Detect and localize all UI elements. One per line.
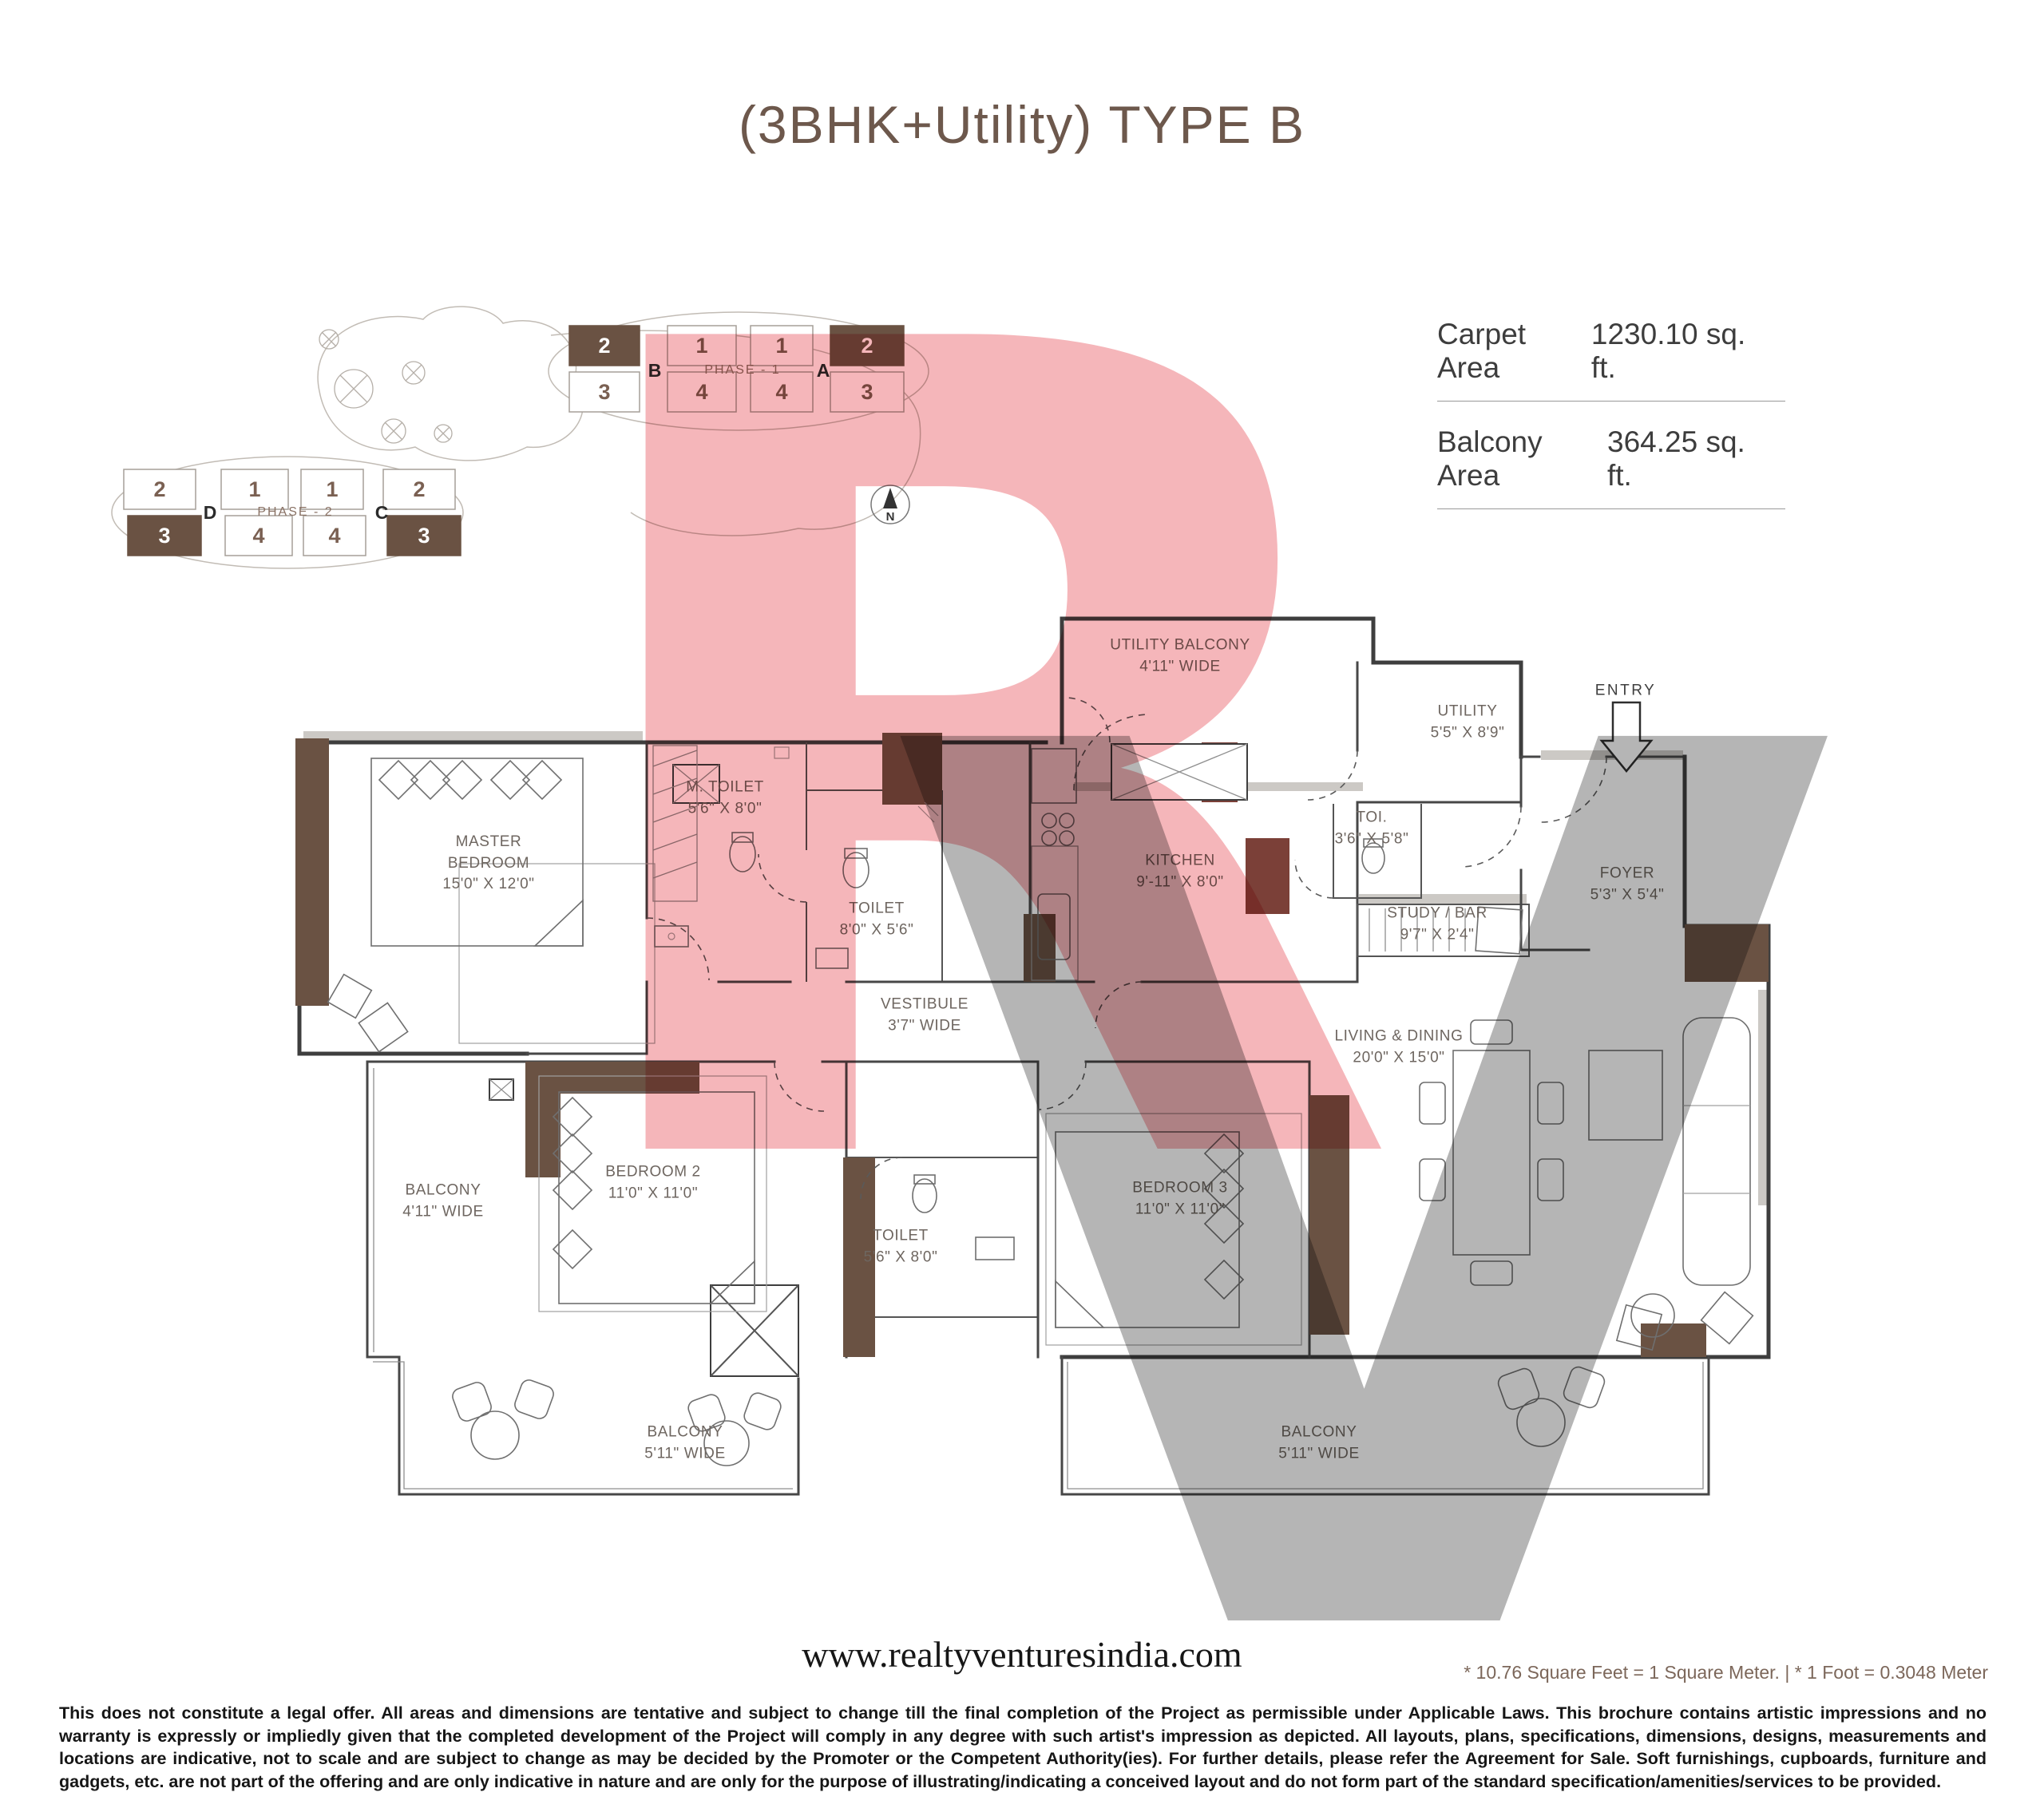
tower-unit-number: 1 [775,334,787,358]
balcony-area-label: Balcony Area [1437,425,1607,493]
outer-walls [299,619,1769,1494]
tower-unit-number: 2 [598,334,610,358]
room-label-foyer: FOYER5'3" X 5'4" [1590,863,1665,905]
legal-disclaimer: This does not constitute a legal offer. … [59,1702,1987,1793]
north-label: N [886,510,895,524]
carpet-area-label: Carpet Area [1437,318,1591,385]
room-label-kitchen: KITCHEN9'-11" X 8'0" [1136,850,1224,892]
brochure-page: (3BHK+Utility) TYPE B 2 1 [0,0,2044,1816]
balcony-area-row: Balcony Area 364.25 sq. ft. [1437,425,1785,509]
floor-plan: UTILITY BALCONY4'11" WIDE UTILITY5'5" X … [295,607,1781,1521]
tower-letter: C [375,502,389,523]
room-label-living-dining: LIVING & DINING20'0" X 15'0" [1334,1026,1463,1068]
tower-unit-number: 4 [252,524,264,548]
tower-unit-number: 2 [153,477,165,501]
phase-label: PHASE - 1 [704,363,780,377]
conversion-note: * 10.76 Square Feet = 1 Square Meter. | … [1464,1662,1988,1683]
wall-piers [295,733,1769,1357]
tree-icon [319,330,452,443]
room-label-toilet-2: TOILET5'6" X 8'0" [864,1225,938,1268]
room-label-utility-balcony: UTILITY BALCONY4'11" WIDE [1110,635,1250,677]
room-label-bedroom-3: BEDROOM 311'0" X 11'0" [1132,1177,1227,1220]
north-indicator: N [871,485,909,524]
room-label-toilet: TOILET8'0" X 5'6" [840,898,914,940]
tower-unit-number: 4 [328,524,340,548]
site-key-plan: 2 1 1 2 3 4 4 3 B PHASE - 1 A [104,303,942,575]
carpet-area-value: 1230.10 sq. ft. [1591,318,1785,385]
tower-unit-number: 1 [248,477,260,501]
room-label-master-bedroom: MASTER BEDROOM15'0" X 12'0" [425,832,553,896]
room-label-utility: UTILITY5'5" X 8'9" [1431,701,1505,743]
floor-plan-drawing [295,607,1781,1521]
tower-unit-number: 3 [418,524,430,548]
tower-unit-number: 3 [861,380,873,404]
room-label-bedroom-2: BEDROOM 211'0" X 11'0" [605,1161,700,1204]
tower-unit-number: 2 [861,334,873,358]
phase-label: PHASE - 2 [257,505,333,519]
room-label-toi: TOI.3'6" X 5'8" [1335,807,1409,849]
carpet-area-row: Carpet Area 1230.10 sq. ft. [1437,318,1785,402]
room-label-vestibule: VESTIBULE3'7" WIDE [881,994,969,1036]
area-summary: Carpet Area 1230.10 sq. ft. Balcony Area… [1437,318,1785,509]
tower-unit-number: 3 [158,524,170,548]
tower-unit-number: 3 [598,380,610,404]
entry-arrow-icon [1602,702,1651,771]
tower-letter: D [204,502,217,523]
tower-unit-number: 2 [413,477,425,501]
tower-letter: A [817,360,830,381]
site-plan-phase2: 2 1 1 2 3 4 4 3 D PHASE - 2 C [124,469,461,556]
room-label-m-toilet: M. TOILET5'6" X 8'0" [686,777,764,819]
tower-unit-number: 1 [326,477,338,501]
room-label-balcony-bottom-right: BALCONY5'11" WIDE [1278,1422,1360,1464]
room-label-study-bar: STUDY / BAR9'7" X 2'4" [1387,903,1487,945]
page-title: (3BHK+Utility) TYPE B [0,94,2044,155]
tower-unit-number: 4 [695,380,707,404]
room-label-balcony-left: BALCONY4'11" WIDE [402,1180,484,1222]
tower-unit-number: 1 [695,334,707,358]
site-plan-phase1: 2 1 1 2 3 4 4 3 B PHASE - 1 A [569,326,904,412]
entry-label: ENTRY [1595,681,1657,702]
tower-unit-number: 4 [775,380,787,404]
room-label-balcony-bottom-left: BALCONY5'11" WIDE [644,1422,726,1464]
balcony-area-value: 364.25 sq. ft. [1607,425,1785,493]
tower-letter: B [648,360,662,381]
